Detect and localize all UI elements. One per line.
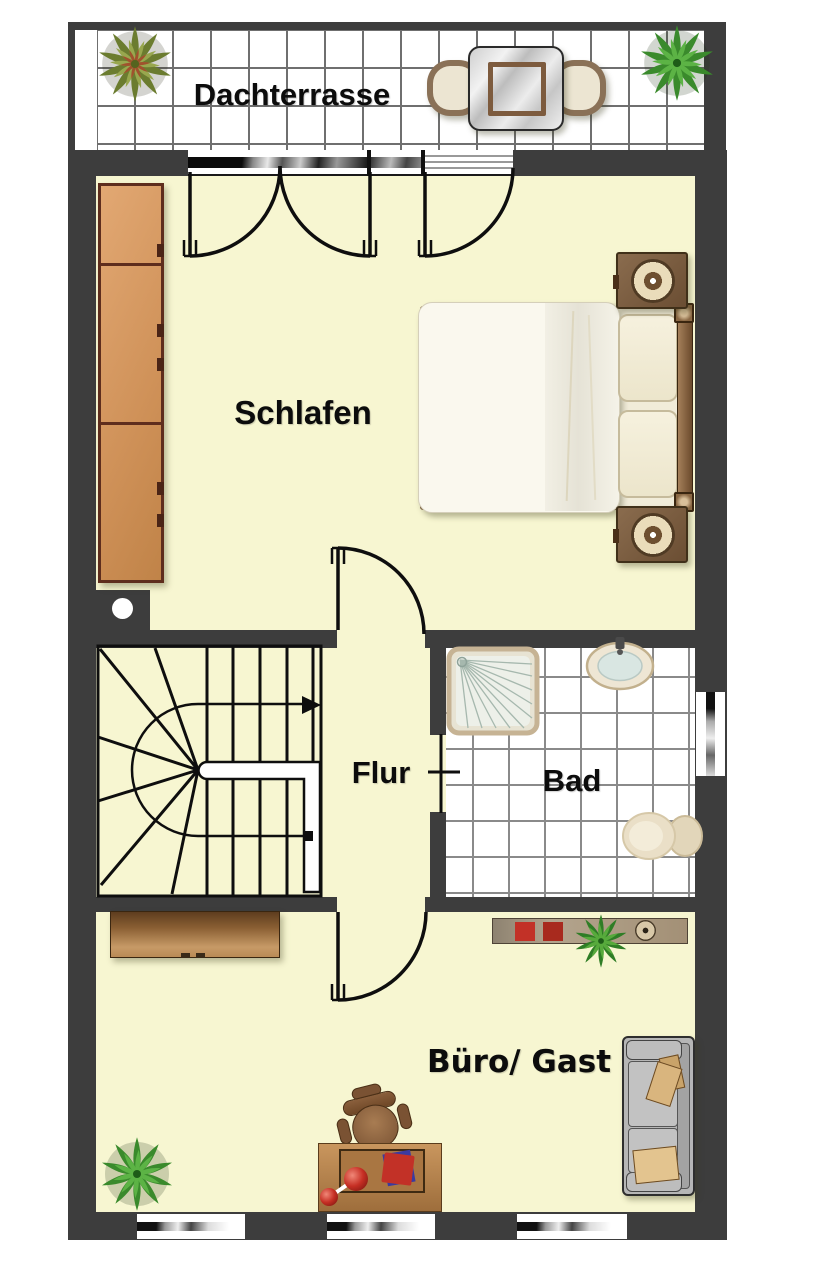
window	[517, 1214, 627, 1239]
notebook-red	[381, 1152, 414, 1185]
wall-bedroom-hall-left	[96, 630, 337, 648]
nightstand-handle	[613, 529, 619, 543]
sideboard-handle	[181, 953, 190, 958]
desk	[318, 1143, 442, 1212]
nightstand-handle	[613, 275, 619, 289]
glass-pane	[706, 692, 715, 776]
wardrobe-handle	[157, 244, 164, 257]
wardrobe-handle	[157, 358, 164, 371]
room-label-terrace: Dachterrasse	[194, 77, 390, 113]
bed-headboard	[677, 307, 693, 510]
terrace-parapet-left	[68, 22, 75, 152]
wardrobe	[98, 183, 164, 583]
room-label-bedroom: Schlafen	[234, 394, 372, 432]
glass-pane	[327, 1222, 435, 1231]
wardrobe-handle	[157, 324, 164, 337]
wall-hall-bath-upper	[430, 648, 446, 735]
window	[327, 1214, 435, 1239]
wardrobe-divider	[101, 263, 161, 266]
room-label-hallway: Flur	[352, 755, 411, 791]
glass-pane	[371, 157, 421, 168]
room-label-office: Büro/ Gast	[427, 1044, 611, 1080]
chimney-pipe-dot	[112, 598, 133, 619]
sideboard-handle	[196, 953, 205, 958]
terrace-parapet-right	[704, 22, 726, 152]
terrace-glass-doors	[188, 150, 513, 176]
book	[543, 922, 563, 941]
wardrobe-divider	[101, 422, 161, 425]
nightstand	[616, 506, 688, 563]
lamp-icon	[631, 513, 675, 557]
lamp-icon	[631, 259, 675, 303]
terrace-table-frame	[488, 62, 546, 116]
wall-left	[68, 150, 96, 1240]
bathroom-window	[696, 692, 725, 776]
floor-plan: Dachterrasse Schlafen Flur Bad Büro/ Gas…	[0, 0, 829, 1288]
glass-pane	[425, 150, 513, 176]
sofa	[622, 1036, 695, 1196]
wardrobe-handle	[157, 482, 164, 495]
bed-duvet-fold	[545, 303, 619, 511]
wall-shelf	[492, 918, 688, 944]
terrace-tiles	[97, 30, 704, 151]
bed-pillow	[618, 314, 678, 402]
wall-bath-office	[425, 897, 695, 912]
wall-hall-office-left	[96, 897, 337, 912]
bed-pillow	[618, 410, 678, 498]
sideboard	[110, 911, 280, 958]
wardrobe-handle	[157, 514, 164, 527]
bed-duvet	[418, 302, 620, 513]
terrace-table	[468, 46, 564, 131]
terrace-parapet-top	[68, 22, 726, 30]
bowl-icon	[635, 920, 656, 941]
nightstand	[616, 252, 688, 309]
sofa-blanket	[632, 1146, 679, 1184]
glass-pane	[137, 1222, 245, 1231]
window	[137, 1214, 245, 1239]
wall-bedroom-bath	[425, 630, 695, 648]
room-label-bathroom: Bad	[543, 763, 602, 799]
glass-pane	[188, 157, 369, 168]
glass-pane	[517, 1222, 627, 1231]
book	[515, 922, 535, 941]
wall-hall-bath-lower	[430, 812, 446, 897]
